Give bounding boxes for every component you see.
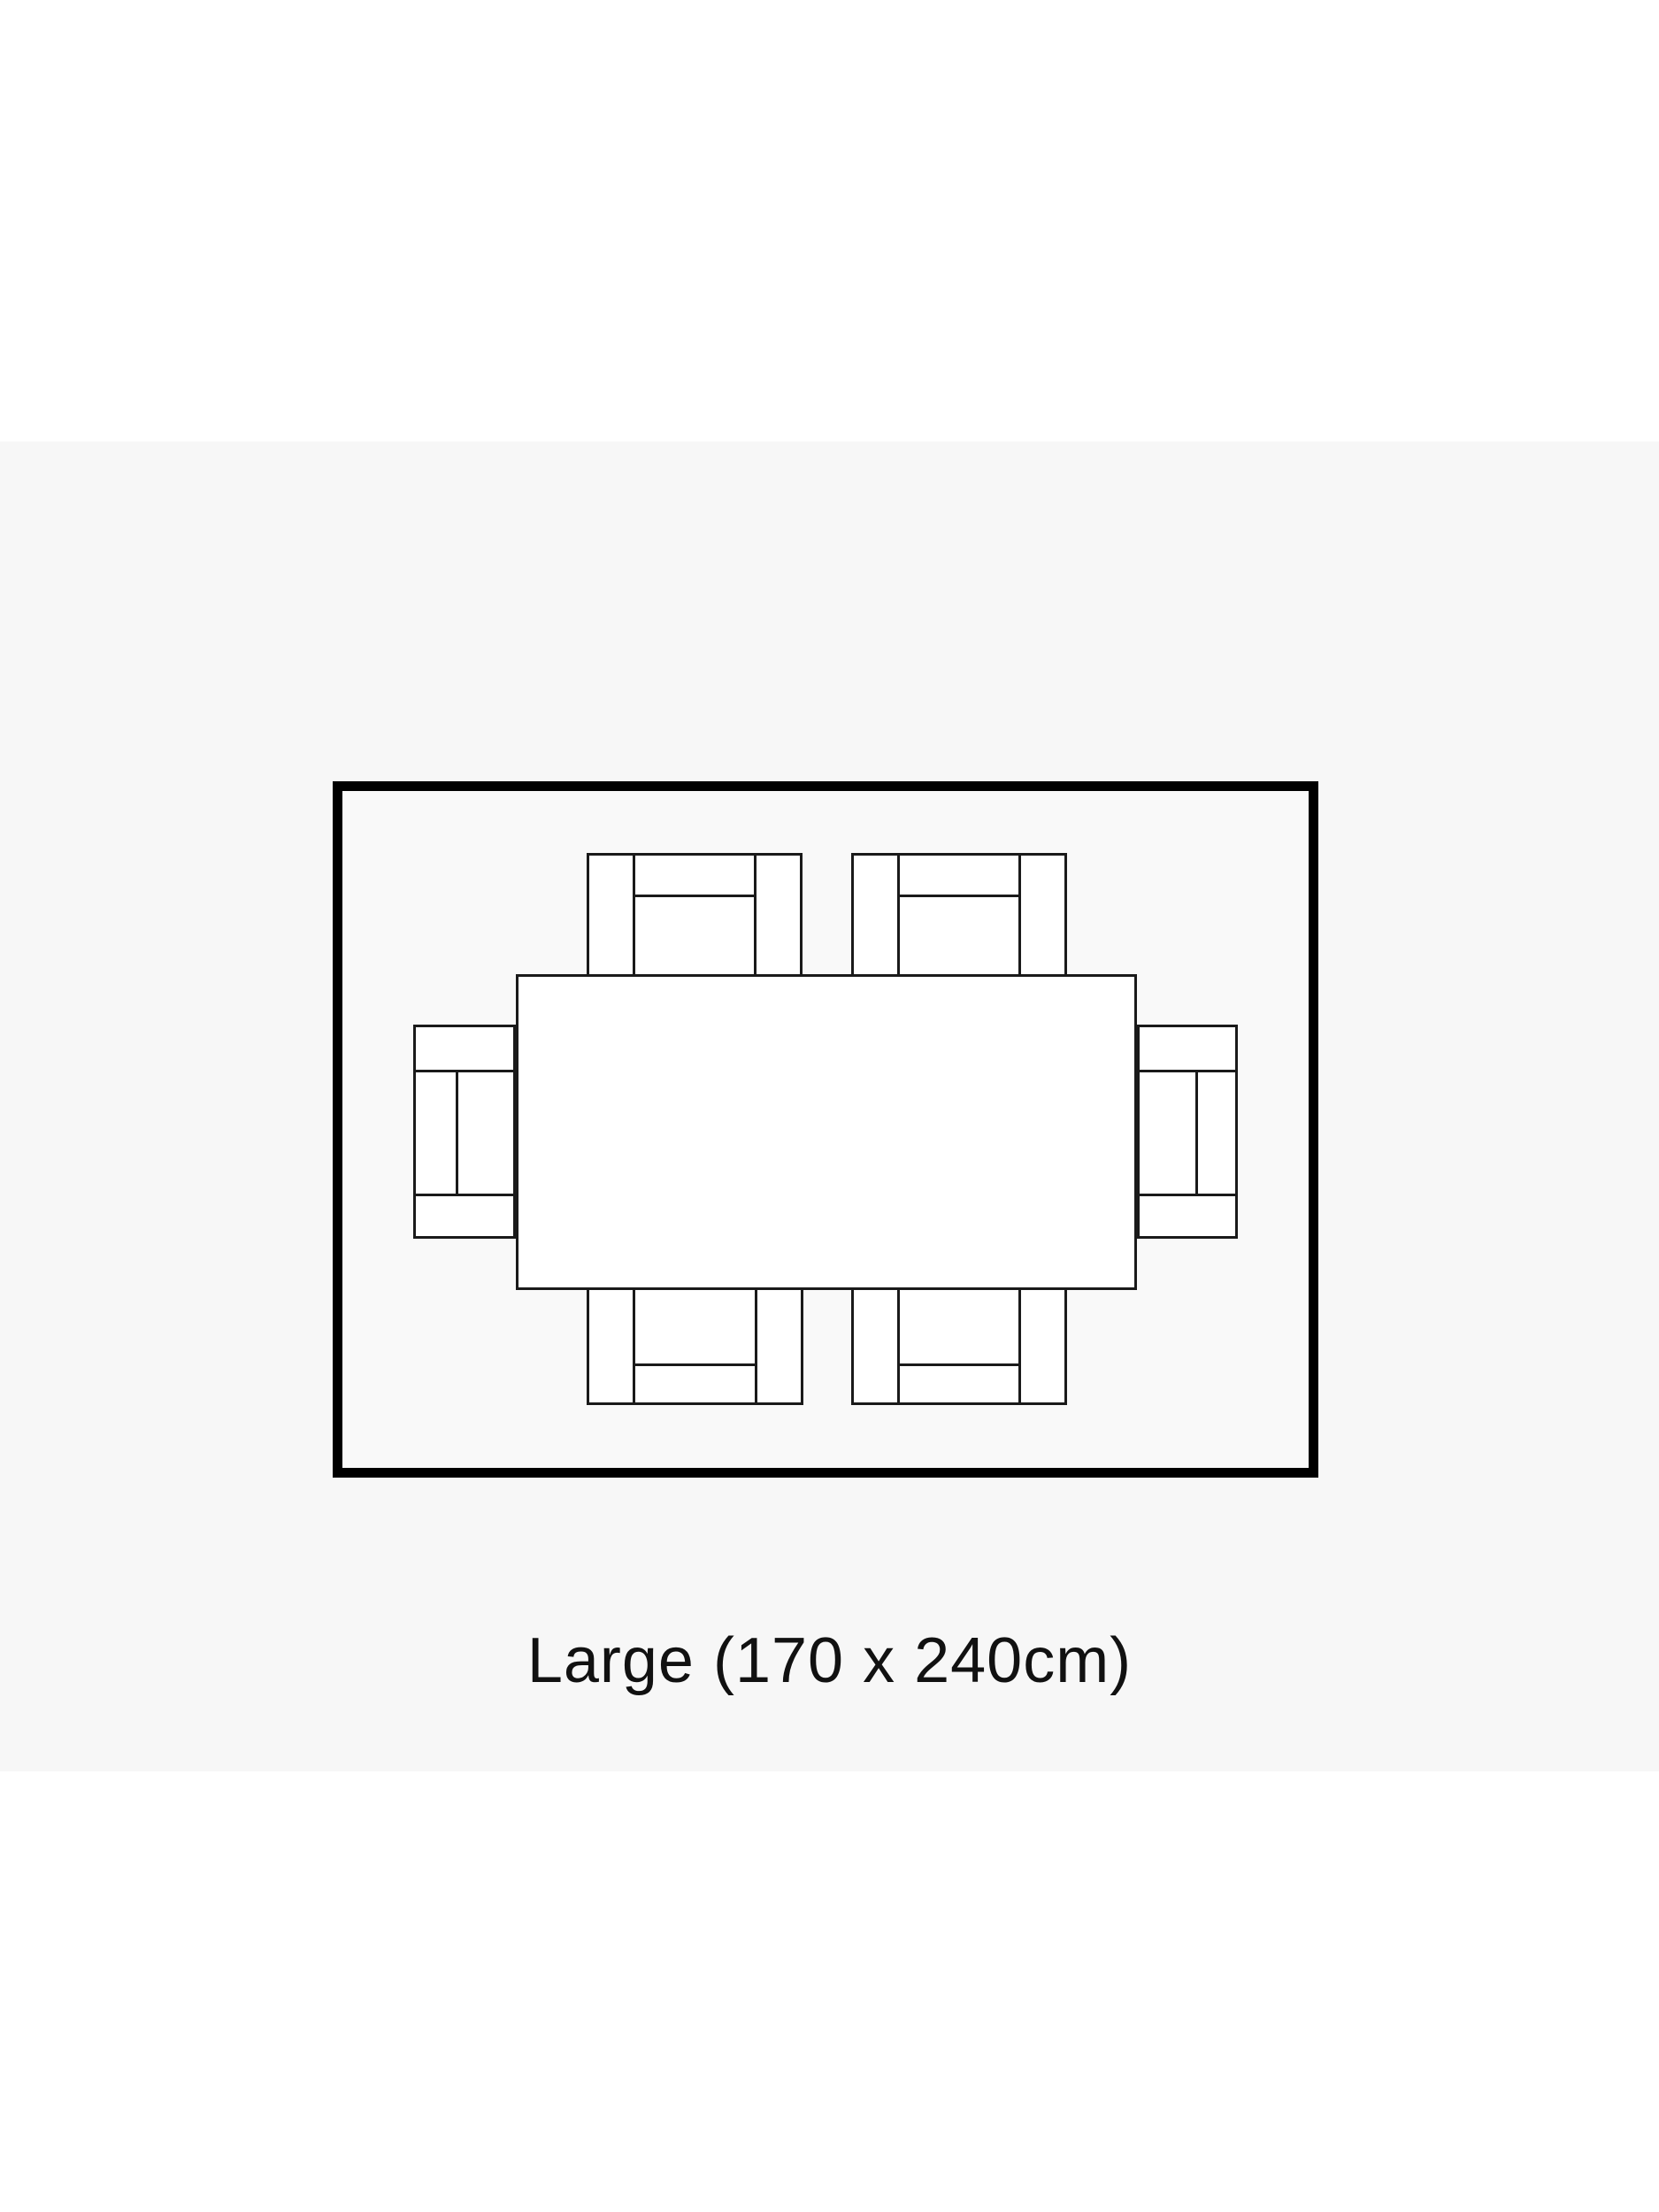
rug-size-caption: Large (170 x 240cm) — [0, 1629, 1659, 1693]
chair-top-right — [851, 853, 1067, 977]
chair-top-left — [587, 853, 803, 977]
chair-bottom-right — [851, 1287, 1067, 1405]
chair-bottom-left — [587, 1287, 803, 1405]
chair-left — [413, 1025, 516, 1239]
rug-outline — [333, 781, 1318, 1478]
dining-table — [516, 974, 1137, 1290]
chair-right — [1137, 1025, 1238, 1239]
page: Example Placement — [0, 0, 1659, 2212]
